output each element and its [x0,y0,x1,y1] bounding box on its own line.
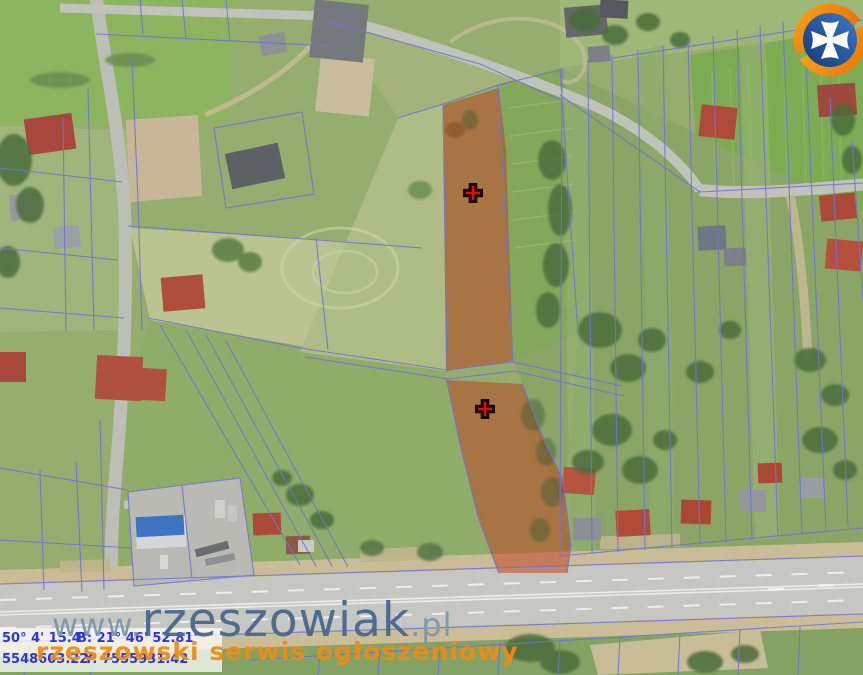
rzeszowiak-logo [792,2,863,82]
watermark-tagline: rzeszowski serwis ogłoszeniowy [36,637,519,666]
logo-graphic [792,2,863,82]
map-canvas[interactable]: 50° 4' 15.4" B: 21° 46' 52.81" 5548603.2… [0,0,863,675]
aerial-imagery [0,0,863,675]
highlight-parcel-1 [443,88,513,371]
